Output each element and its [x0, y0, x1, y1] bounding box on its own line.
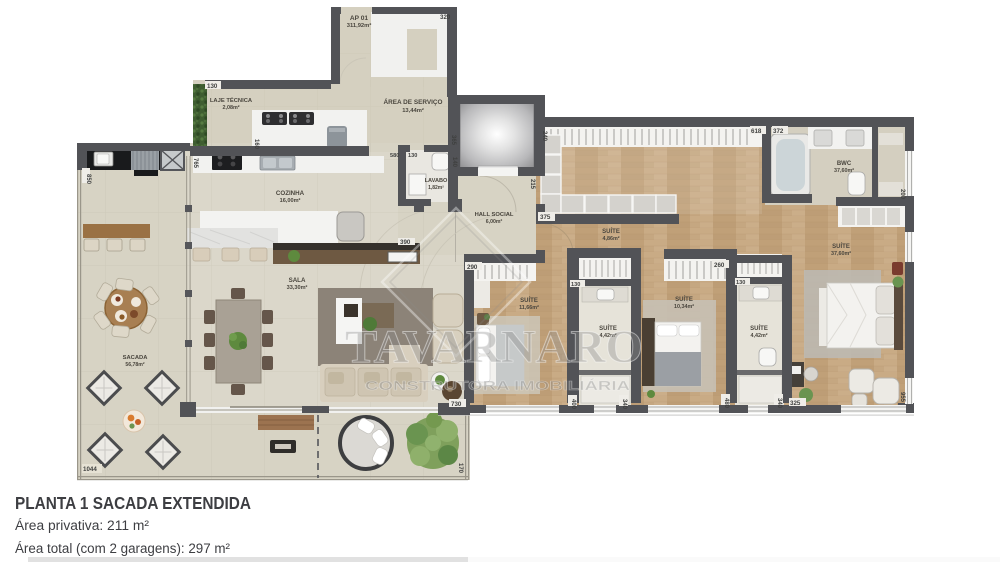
svg-text:4,86m²: 4,86m²: [602, 236, 619, 242]
svg-text:340: 340: [621, 399, 627, 410]
svg-text:130: 130: [207, 83, 218, 90]
svg-text:170: 170: [457, 463, 463, 474]
svg-text:200: 200: [899, 189, 905, 200]
svg-text:580: 580: [390, 153, 399, 159]
svg-text:10,34m²: 10,34m²: [674, 304, 694, 310]
svg-text:SUÍTE: SUÍTE: [520, 296, 538, 304]
svg-text:765: 765: [192, 158, 198, 169]
svg-text:AP 01: AP 01: [350, 15, 369, 22]
svg-text:16,00m²: 16,00m²: [280, 197, 301, 204]
svg-text:130: 130: [736, 280, 745, 286]
svg-text:COZINHA: COZINHA: [276, 190, 305, 197]
svg-text:1044: 1044: [83, 466, 97, 473]
svg-text:240: 240: [541, 131, 547, 142]
svg-text:SUÍTE: SUÍTE: [675, 295, 693, 303]
svg-text:ÁREA DE SERVIÇO: ÁREA DE SERVIÇO: [384, 97, 443, 106]
svg-text:130: 130: [408, 153, 417, 159]
svg-text:SUÍTE: SUÍTE: [832, 242, 850, 250]
svg-text:Área privativa: 211 m²: Área privativa: 211 m²: [15, 518, 150, 533]
svg-text:56,78m²: 56,78m²: [125, 362, 145, 368]
svg-text:730: 730: [451, 401, 462, 408]
svg-text:390: 390: [400, 239, 411, 246]
svg-text:365: 365: [450, 135, 456, 146]
svg-text:2,08m²: 2,08m²: [222, 105, 239, 111]
svg-text:320: 320: [440, 14, 451, 21]
svg-text:215: 215: [529, 179, 535, 190]
svg-text:PLANTA 1 SACADA EXTENDIDA: PLANTA 1 SACADA EXTENDIDA: [15, 493, 251, 513]
svg-text:375: 375: [540, 214, 551, 221]
svg-text:140: 140: [451, 157, 457, 168]
svg-text:372: 372: [773, 128, 784, 135]
svg-text:Área total (com 2 garagens): 2: Área total (com 2 garagens): 297 m²: [15, 541, 230, 556]
svg-text:955: 955: [899, 392, 905, 403]
svg-text:6,00m²: 6,00m²: [486, 219, 503, 225]
svg-text:SUÍTE: SUÍTE: [602, 227, 620, 235]
svg-text:LAVABO: LAVABO: [425, 178, 448, 184]
svg-text:400: 400: [570, 399, 576, 410]
svg-text:HALL SOCIAL: HALL SOCIAL: [475, 212, 514, 218]
svg-text:290: 290: [467, 264, 478, 271]
svg-text:SALA: SALA: [289, 277, 306, 284]
svg-text:130: 130: [571, 282, 580, 288]
svg-text:260: 260: [714, 262, 725, 269]
svg-text:4,42m²: 4,42m²: [750, 333, 767, 339]
svg-text:BWC: BWC: [837, 161, 852, 167]
svg-text:160: 160: [253, 139, 259, 150]
svg-text:618: 618: [751, 128, 762, 135]
svg-text:11,66m²: 11,66m²: [519, 305, 539, 311]
svg-text:37,60m²: 37,60m²: [834, 168, 854, 174]
svg-text:480: 480: [723, 398, 729, 409]
svg-text:13,44m²: 13,44m²: [402, 107, 424, 114]
svg-text:33,30m²: 33,30m²: [287, 284, 308, 291]
svg-text:TAVARNARO: TAVARNARO: [345, 321, 643, 373]
svg-text:37,60m²: 37,60m²: [831, 251, 851, 257]
svg-text:325: 325: [790, 400, 801, 407]
svg-text:SUÍTE: SUÍTE: [750, 324, 768, 332]
svg-text:CONSTRUTORA IMOBILIÁRIA: CONSTRUTORA IMOBILIÁRIA: [365, 378, 631, 393]
svg-text:SACADA: SACADA: [123, 355, 149, 361]
svg-text:311,92m²: 311,92m²: [347, 22, 372, 29]
svg-text:340: 340: [776, 398, 782, 409]
svg-text:850: 850: [85, 174, 91, 185]
svg-text:LAJE TÉCNICA: LAJE TÉCNICA: [210, 96, 253, 104]
svg-text:1,82m²: 1,82m²: [428, 185, 444, 191]
